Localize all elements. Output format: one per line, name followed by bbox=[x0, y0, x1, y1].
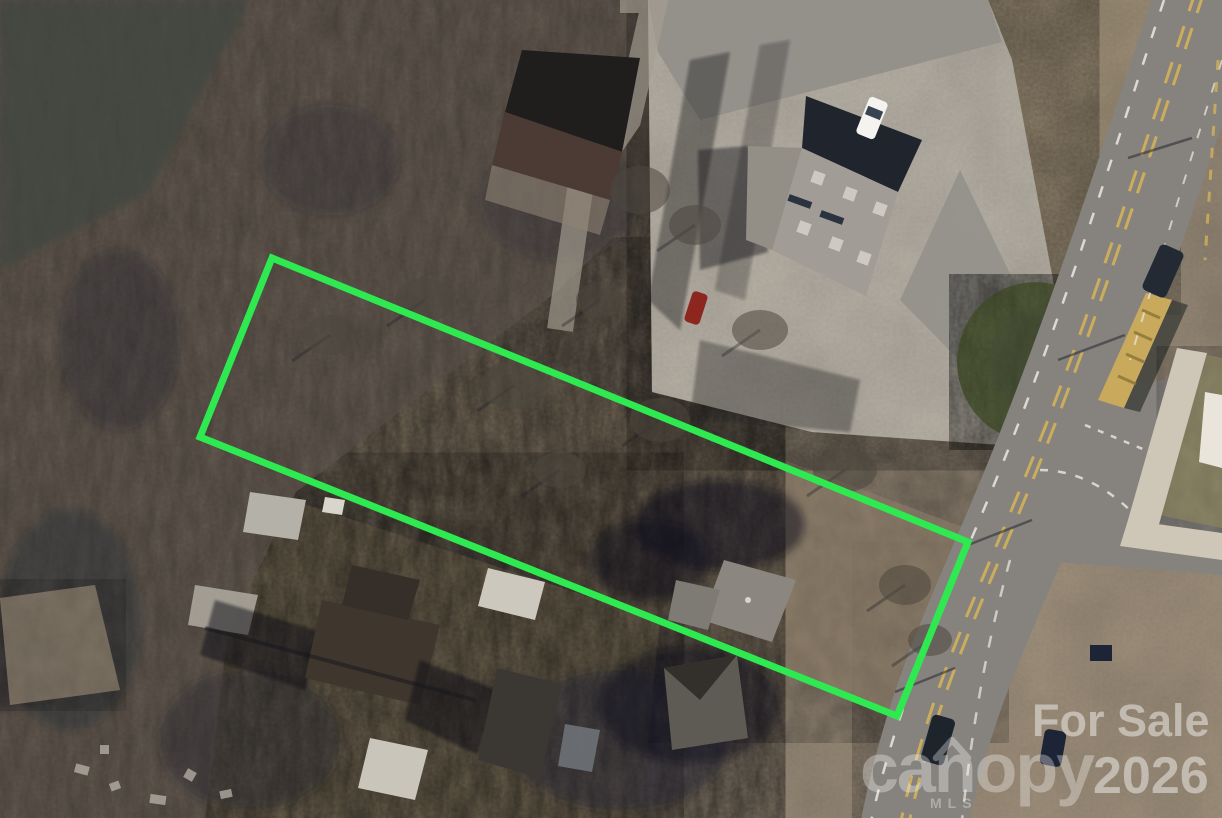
mls-sub-label: MLS bbox=[930, 795, 978, 811]
tree-shadow-blob bbox=[260, 105, 400, 215]
aerial-photo-canvas: For Sale 2026 canopy MLS bbox=[0, 0, 1222, 818]
tree bbox=[304, 315, 356, 355]
watermark-year: 2026 bbox=[1093, 747, 1209, 805]
tree bbox=[576, 282, 624, 318]
tree bbox=[534, 452, 586, 488]
canopy-mls-logo: canopy MLS bbox=[860, 729, 1095, 811]
tree-shadow-blob bbox=[160, 670, 340, 810]
aerial-photo: For Sale 2026 canopy MLS bbox=[0, 0, 1222, 818]
tree bbox=[879, 565, 931, 605]
tree-shadow-blob bbox=[60, 250, 180, 430]
canopy-wordmark: canopy bbox=[860, 729, 1095, 807]
small-white-shed bbox=[322, 497, 345, 515]
debris bbox=[100, 745, 109, 754]
shed-roof bbox=[243, 492, 306, 540]
tree bbox=[669, 205, 721, 245]
roof-detail bbox=[745, 597, 751, 603]
house-bottom-right-of-yards bbox=[600, 647, 780, 763]
tree bbox=[732, 310, 788, 350]
tree bbox=[610, 166, 670, 214]
dark-dumpster bbox=[1090, 645, 1112, 661]
